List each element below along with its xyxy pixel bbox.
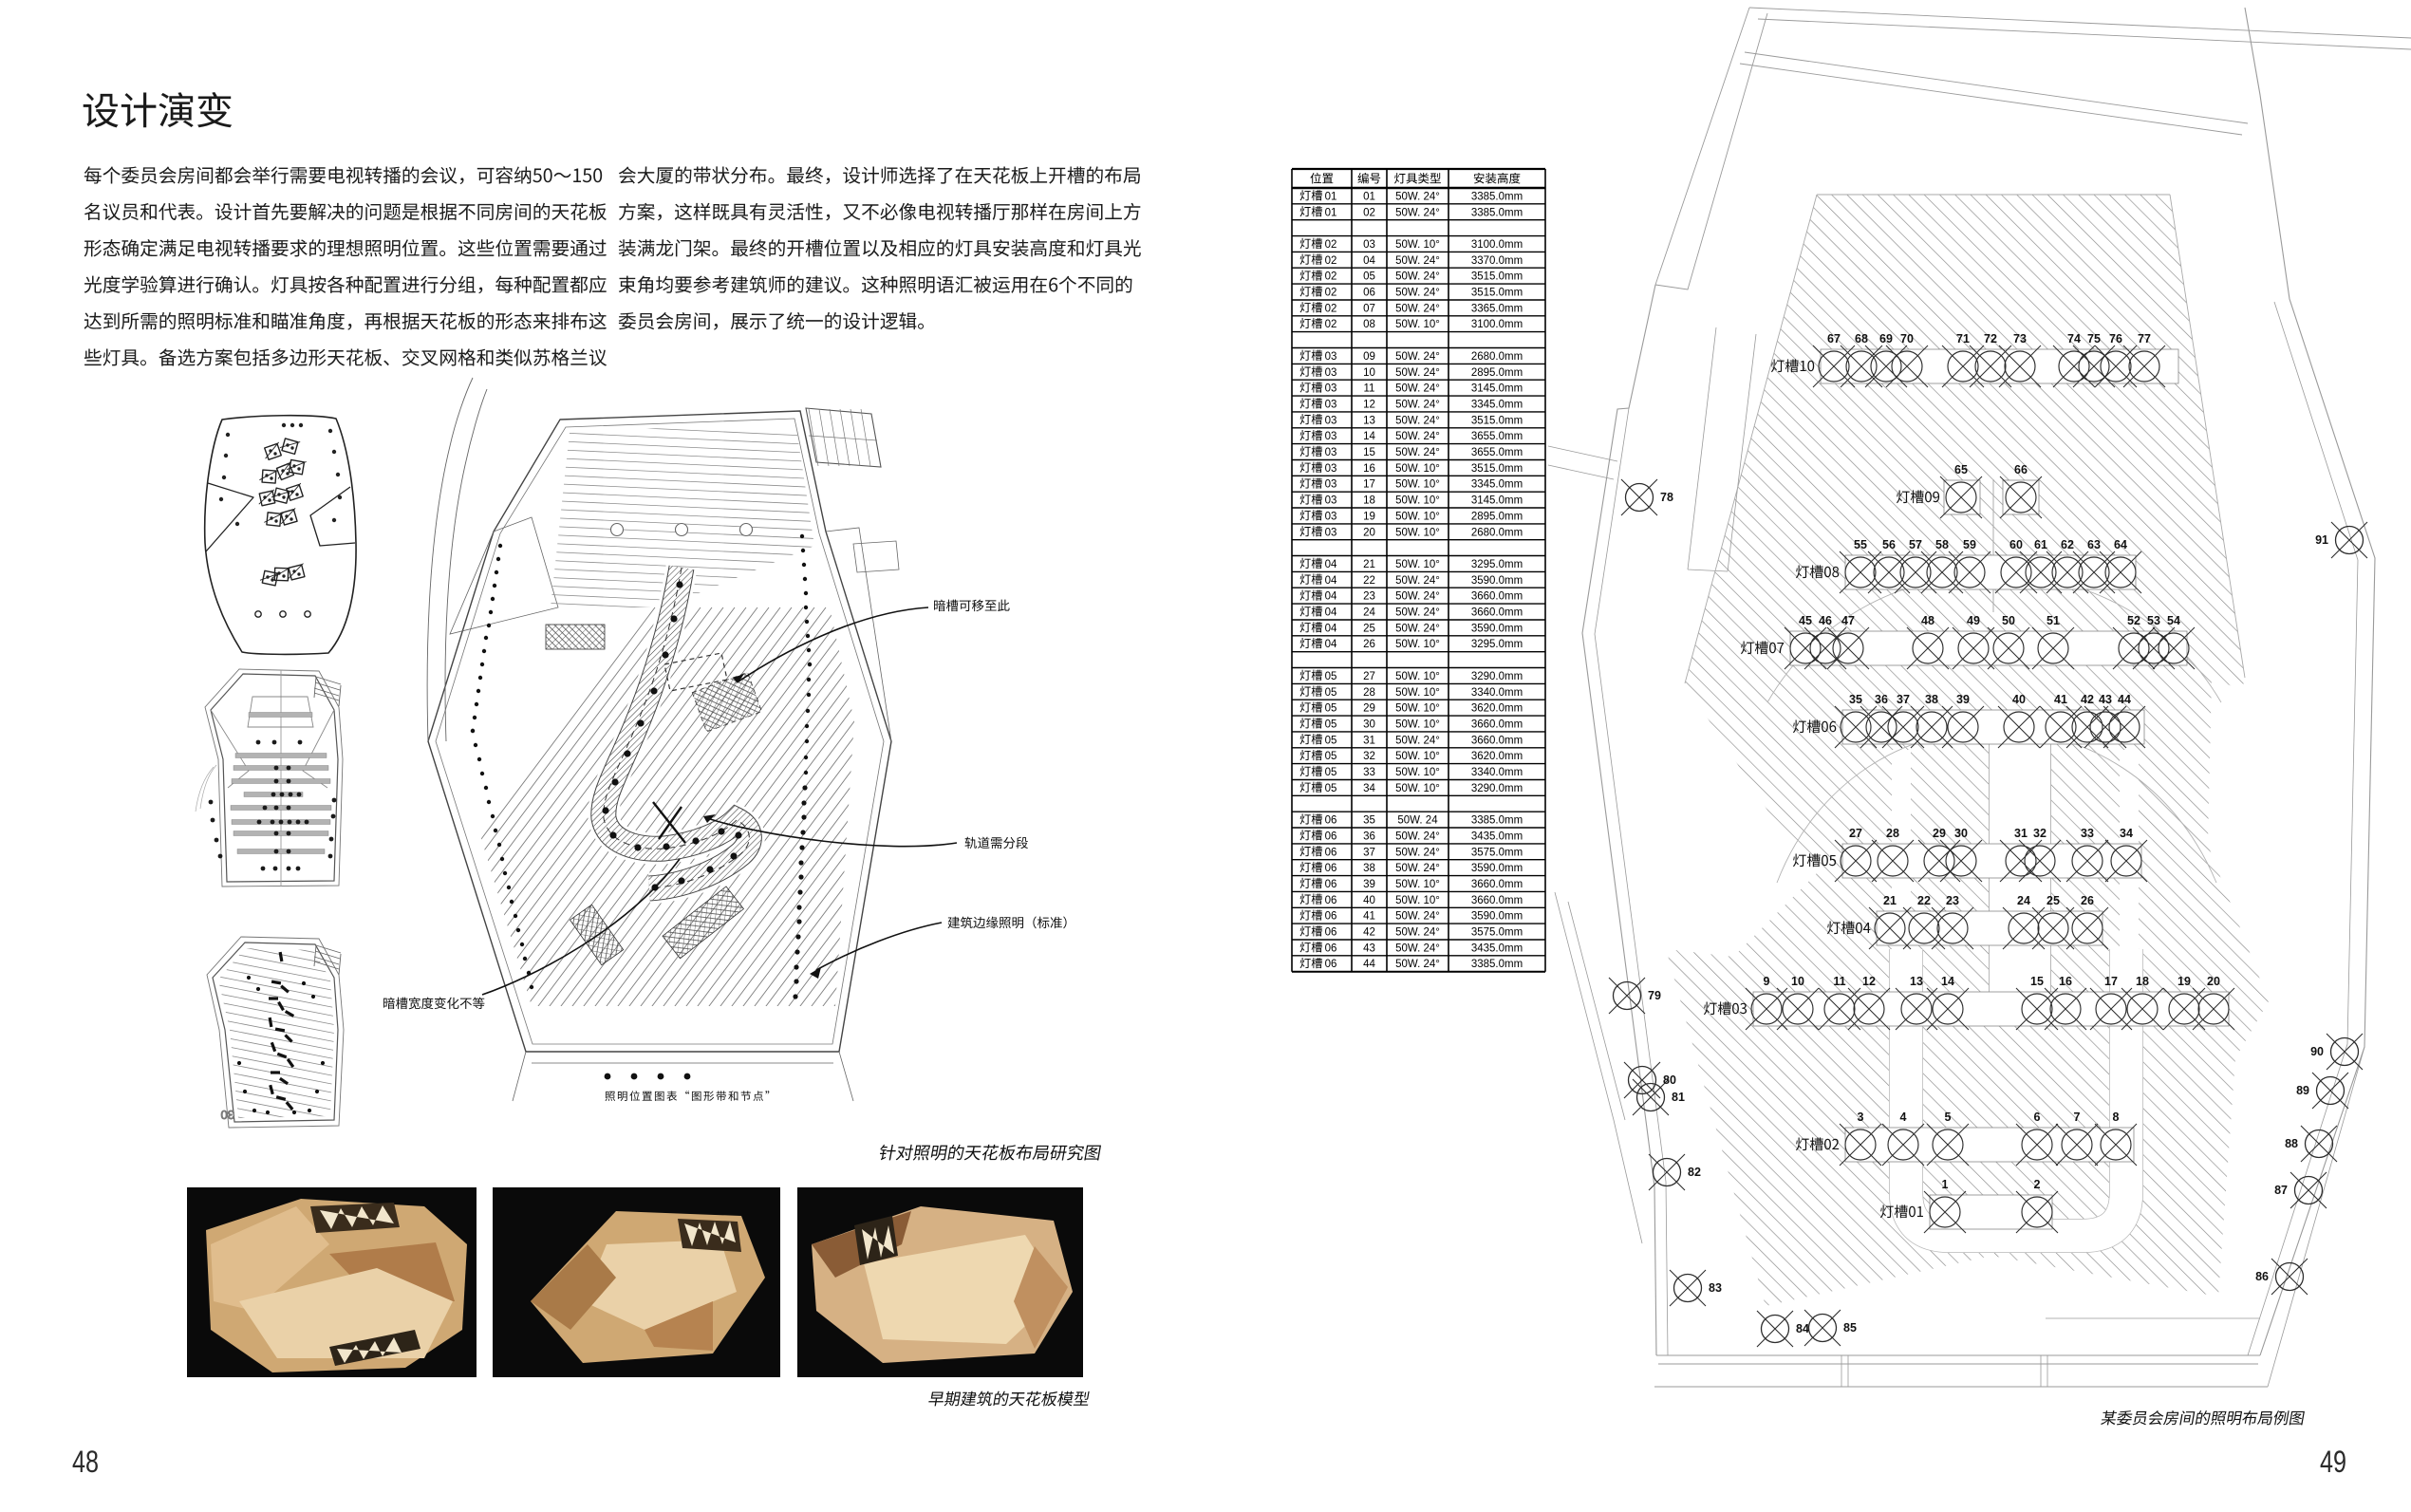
svg-text:03: 03: [1325, 511, 1337, 522]
svg-text:91: 91: [2315, 533, 2328, 547]
svg-text:06: 06: [1325, 959, 1337, 970]
svg-text:12: 12: [1363, 400, 1375, 411]
svg-text:06: 06: [1325, 911, 1337, 923]
svg-text:12: 12: [1862, 975, 1876, 988]
svg-text:50W. 24°: 50W. 24°: [1395, 400, 1440, 411]
svg-text:42: 42: [2081, 693, 2094, 706]
svg-text:50W. 10°: 50W. 10°: [1395, 671, 1440, 682]
svg-text:19: 19: [2177, 975, 2191, 988]
svg-text:30: 30: [221, 1108, 234, 1122]
svg-text:81: 81: [1672, 1091, 1685, 1104]
svg-text:5: 5: [1945, 1111, 1952, 1124]
svg-text:67: 67: [1827, 332, 1841, 345]
svg-text:27: 27: [1849, 827, 1862, 840]
svg-text:50W. 10°: 50W. 10°: [1395, 639, 1440, 650]
svg-text:04: 04: [1325, 639, 1337, 650]
svg-text:31: 31: [1363, 735, 1375, 746]
svg-text:66: 66: [2014, 463, 2028, 476]
svg-text:14: 14: [1363, 431, 1375, 442]
svg-text:44: 44: [1363, 959, 1375, 970]
svg-text:33: 33: [1363, 767, 1375, 778]
svg-text:80: 80: [1663, 1073, 1676, 1087]
svg-text:48: 48: [1921, 614, 1934, 627]
svg-text:05: 05: [1325, 783, 1337, 794]
svg-text:05: 05: [1363, 271, 1375, 283]
svg-text:46: 46: [1819, 614, 1832, 627]
svg-text:35: 35: [1849, 693, 1862, 706]
svg-text:50W. 10°: 50W. 10°: [1395, 479, 1440, 491]
svg-text:50W. 24°: 50W. 24°: [1395, 847, 1440, 858]
svg-text:39: 39: [1363, 879, 1375, 890]
svg-text:03: 03: [1325, 479, 1337, 491]
svg-text:23: 23: [1363, 591, 1375, 603]
svg-text:89: 89: [2296, 1084, 2309, 1097]
svg-text:84: 84: [1796, 1322, 1809, 1335]
svg-text:32: 32: [1363, 751, 1375, 762]
svg-text:3145.0mm: 3145.0mm: [1471, 383, 1523, 395]
svg-text:02: 02: [1363, 207, 1375, 218]
svg-text:4: 4: [1900, 1111, 1907, 1124]
svg-text:51: 51: [2047, 614, 2060, 627]
svg-text:3345.0mm: 3345.0mm: [1471, 479, 1523, 491]
svg-text:50W. 24°: 50W. 24°: [1395, 863, 1440, 874]
svg-text:29: 29: [1363, 703, 1375, 715]
svg-text:22: 22: [1917, 894, 1931, 907]
svg-text:71: 71: [1956, 332, 1970, 345]
svg-text:50W. 10°: 50W. 10°: [1395, 495, 1440, 507]
svg-text:15: 15: [2030, 975, 2044, 988]
svg-text:02: 02: [1325, 288, 1337, 299]
svg-text:09: 09: [1363, 351, 1375, 363]
svg-text:45: 45: [1799, 614, 1812, 627]
svg-text:03: 03: [1325, 447, 1337, 458]
svg-text:55: 55: [1854, 538, 1867, 551]
svg-text:50W. 24°: 50W. 24°: [1395, 383, 1440, 395]
svg-text:37: 37: [1363, 847, 1375, 858]
svg-text:3515.0mm: 3515.0mm: [1471, 463, 1523, 475]
svg-text:50W. 24°: 50W. 24°: [1395, 367, 1440, 379]
svg-text:8: 8: [2113, 1111, 2120, 1124]
svg-text:36: 36: [1875, 693, 1888, 706]
svg-text:26: 26: [1363, 639, 1375, 650]
svg-text:3295.0mm: 3295.0mm: [1471, 559, 1523, 570]
svg-text:88: 88: [2285, 1137, 2298, 1150]
svg-text:56: 56: [1882, 538, 1896, 551]
svg-text:50W. 10°: 50W. 10°: [1395, 687, 1440, 699]
svg-text:43: 43: [2099, 693, 2112, 706]
svg-text:47: 47: [1841, 614, 1855, 627]
svg-text:06: 06: [1325, 863, 1337, 874]
svg-text:50W. 10°: 50W. 10°: [1395, 511, 1440, 522]
svg-text:04: 04: [1325, 575, 1337, 587]
svg-text:77: 77: [2138, 332, 2151, 345]
svg-text:50W. 24°: 50W. 24°: [1395, 431, 1440, 442]
svg-text:74: 74: [2067, 332, 2081, 345]
svg-text:3145.0mm: 3145.0mm: [1471, 495, 1523, 507]
svg-text:40: 40: [2012, 693, 2026, 706]
svg-text:05: 05: [1325, 703, 1337, 715]
svg-text:3340.0mm: 3340.0mm: [1471, 687, 1523, 699]
svg-text:57: 57: [1909, 538, 1922, 551]
svg-text:50W. 10°: 50W. 10°: [1395, 783, 1440, 794]
svg-text:28: 28: [1363, 687, 1375, 699]
svg-text:24: 24: [2017, 894, 2030, 907]
svg-text:50W. 10°: 50W. 10°: [1395, 239, 1440, 251]
svg-text:50W. 24°: 50W. 24°: [1395, 271, 1440, 283]
svg-text:52: 52: [2127, 614, 2140, 627]
svg-text:3590.0mm: 3590.0mm: [1471, 911, 1523, 923]
svg-text:73: 73: [2013, 332, 2027, 345]
svg-text:24: 24: [1363, 607, 1375, 619]
svg-text:21: 21: [1363, 559, 1375, 570]
svg-text:3590.0mm: 3590.0mm: [1471, 575, 1523, 587]
svg-text:34: 34: [1363, 783, 1375, 794]
svg-text:3365.0mm: 3365.0mm: [1471, 303, 1523, 314]
svg-text:3435.0mm: 3435.0mm: [1471, 831, 1523, 842]
svg-text:50W. 10°: 50W. 10°: [1395, 719, 1440, 731]
svg-text:82: 82: [1688, 1166, 1701, 1179]
svg-text:06: 06: [1363, 288, 1375, 299]
svg-text:50W. 24°: 50W. 24°: [1395, 911, 1440, 923]
svg-text:3385.0mm: 3385.0mm: [1471, 207, 1523, 218]
svg-text:65: 65: [1954, 463, 1968, 476]
svg-text:3340.0mm: 3340.0mm: [1471, 767, 1523, 778]
svg-text:08: 08: [1363, 319, 1375, 330]
svg-text:50W. 24°: 50W. 24°: [1395, 591, 1440, 603]
svg-text:78: 78: [1660, 491, 1673, 504]
svg-text:6: 6: [2034, 1111, 2041, 1124]
svg-text:02: 02: [1325, 255, 1337, 267]
svg-text:3385.0mm: 3385.0mm: [1471, 191, 1523, 202]
svg-text:2895.0mm: 2895.0mm: [1471, 511, 1523, 522]
svg-text:75: 75: [2087, 332, 2101, 345]
svg-text:20: 20: [1363, 527, 1375, 538]
svg-text:10: 10: [1363, 367, 1375, 379]
svg-text:02: 02: [1325, 319, 1337, 330]
svg-text:37: 37: [1897, 693, 1910, 706]
svg-text:50W. 24°: 50W. 24°: [1395, 575, 1440, 587]
svg-text:05: 05: [1325, 719, 1337, 731]
svg-text:58: 58: [1935, 538, 1949, 551]
svg-text:01: 01: [1325, 191, 1337, 202]
svg-text:50W. 24°: 50W. 24°: [1395, 735, 1440, 746]
svg-text:17: 17: [1363, 479, 1375, 491]
svg-text:3515.0mm: 3515.0mm: [1471, 271, 1523, 283]
svg-text:49: 49: [1967, 614, 1980, 627]
svg-text:20: 20: [2207, 975, 2220, 988]
svg-text:03: 03: [1325, 400, 1337, 411]
svg-text:50W. 10°: 50W. 10°: [1395, 751, 1440, 762]
svg-text:06: 06: [1325, 815, 1337, 827]
svg-text:2680.0mm: 2680.0mm: [1471, 527, 1523, 538]
svg-text:44: 44: [2118, 693, 2131, 706]
svg-text:28: 28: [1886, 827, 1899, 840]
svg-text:41: 41: [1363, 911, 1375, 923]
svg-text:50W. 24°: 50W. 24°: [1395, 607, 1440, 619]
svg-text:05: 05: [1325, 687, 1337, 699]
svg-text:3515.0mm: 3515.0mm: [1471, 288, 1523, 299]
svg-text:3575.0mm: 3575.0mm: [1471, 847, 1523, 858]
svg-text:18: 18: [2136, 975, 2149, 988]
svg-text:50W. 24°: 50W. 24°: [1395, 447, 1440, 458]
svg-text:85: 85: [1843, 1321, 1857, 1335]
svg-text:27: 27: [1363, 671, 1375, 682]
svg-text:25: 25: [1363, 623, 1375, 634]
svg-text:35: 35: [1363, 815, 1375, 827]
svg-text:41: 41: [2054, 693, 2067, 706]
svg-text:3655.0mm: 3655.0mm: [1471, 431, 1523, 442]
svg-text:70: 70: [1900, 332, 1914, 345]
svg-text:3660.0mm: 3660.0mm: [1471, 735, 1523, 746]
svg-text:02: 02: [1325, 239, 1337, 251]
svg-text:50W. 24°: 50W. 24°: [1395, 303, 1440, 314]
svg-text:04: 04: [1363, 255, 1375, 267]
svg-text:63: 63: [2087, 538, 2101, 551]
svg-text:38: 38: [1925, 693, 1938, 706]
svg-text:05: 05: [1325, 767, 1337, 778]
svg-text:3345.0mm: 3345.0mm: [1471, 400, 1523, 411]
svg-text:3575.0mm: 3575.0mm: [1471, 927, 1523, 939]
svg-text:25: 25: [2047, 894, 2060, 907]
svg-text:49: 49: [2320, 1445, 2346, 1479]
svg-text:50W. 24°: 50W. 24°: [1395, 415, 1440, 426]
svg-text:16: 16: [1363, 463, 1375, 475]
svg-text:3290.0mm: 3290.0mm: [1471, 783, 1523, 794]
svg-text:30: 30: [1954, 827, 1968, 840]
svg-text:43: 43: [1363, 943, 1375, 954]
svg-text:23: 23: [1946, 894, 1959, 907]
svg-text:04: 04: [1325, 591, 1337, 603]
svg-text:79: 79: [1648, 989, 1661, 1002]
svg-text:50W. 10°: 50W. 10°: [1395, 527, 1440, 538]
svg-text:06: 06: [1325, 879, 1337, 890]
svg-text:05: 05: [1325, 735, 1337, 746]
svg-text:3660.0mm: 3660.0mm: [1471, 607, 1523, 619]
svg-text:54: 54: [2167, 614, 2180, 627]
svg-text:3660.0mm: 3660.0mm: [1471, 895, 1523, 906]
svg-text:06: 06: [1325, 927, 1337, 939]
svg-text:21: 21: [1883, 894, 1897, 907]
svg-text:50W. 24°: 50W. 24°: [1395, 191, 1440, 202]
svg-text:50W. 10°: 50W. 10°: [1395, 895, 1440, 906]
svg-text:06: 06: [1325, 895, 1337, 906]
svg-text:38: 38: [1363, 863, 1375, 874]
svg-text:40: 40: [1363, 895, 1375, 906]
svg-text:53: 53: [2147, 614, 2160, 627]
svg-text:13: 13: [1910, 975, 1923, 988]
svg-text:02: 02: [1325, 303, 1337, 314]
svg-text:03: 03: [1325, 415, 1337, 426]
svg-text:06: 06: [1325, 831, 1337, 842]
svg-text:36: 36: [1363, 831, 1375, 842]
svg-text:50W. 24°: 50W. 24°: [1395, 959, 1440, 970]
svg-text:30: 30: [1363, 719, 1375, 731]
svg-text:18: 18: [1363, 495, 1375, 507]
svg-text:3295.0mm: 3295.0mm: [1471, 639, 1523, 650]
svg-text:3100.0mm: 3100.0mm: [1471, 319, 1523, 330]
svg-text:3660.0mm: 3660.0mm: [1471, 591, 1523, 603]
svg-text:59: 59: [1963, 538, 1976, 551]
svg-text:3590.0mm: 3590.0mm: [1471, 863, 1523, 874]
svg-text:3620.0mm: 3620.0mm: [1471, 703, 1523, 715]
svg-text:69: 69: [1879, 332, 1893, 345]
svg-text:62: 62: [2061, 538, 2074, 551]
svg-text:3660.0mm: 3660.0mm: [1471, 879, 1523, 890]
svg-text:50W. 24: 50W. 24: [1397, 815, 1438, 827]
svg-text:02: 02: [1325, 271, 1337, 283]
svg-text:50W. 24°: 50W. 24°: [1395, 288, 1440, 299]
svg-text:50W. 24°: 50W. 24°: [1395, 927, 1440, 939]
svg-text:03: 03: [1325, 463, 1337, 475]
svg-text:50W. 24°: 50W. 24°: [1395, 831, 1440, 842]
svg-text:42: 42: [1363, 927, 1375, 939]
svg-text:01: 01: [1363, 191, 1375, 202]
svg-text:87: 87: [2274, 1184, 2288, 1197]
svg-text:13: 13: [1363, 415, 1375, 426]
svg-text:04: 04: [1325, 607, 1337, 619]
svg-text:90: 90: [2310, 1045, 2324, 1058]
svg-text:3385.0mm: 3385.0mm: [1471, 959, 1523, 970]
svg-text:3515.0mm: 3515.0mm: [1471, 415, 1523, 426]
svg-text:48: 48: [72, 1445, 99, 1479]
svg-text:3370.0mm: 3370.0mm: [1471, 255, 1523, 267]
svg-text:86: 86: [2255, 1270, 2269, 1283]
svg-text:03: 03: [1325, 495, 1337, 507]
svg-text:11: 11: [1364, 383, 1375, 395]
svg-text:05: 05: [1325, 671, 1337, 682]
svg-text:3660.0mm: 3660.0mm: [1471, 719, 1523, 731]
svg-text:50W. 10°: 50W. 10°: [1395, 767, 1440, 778]
svg-text:2: 2: [2034, 1178, 2041, 1191]
svg-text:22: 22: [1363, 575, 1375, 587]
svg-text:50W. 10°: 50W. 10°: [1395, 703, 1440, 715]
svg-text:11: 11: [1833, 975, 1845, 988]
svg-text:3590.0mm: 3590.0mm: [1471, 623, 1523, 634]
svg-text:3385.0mm: 3385.0mm: [1471, 815, 1523, 827]
svg-text:1: 1: [1942, 1178, 1949, 1191]
svg-text:03: 03: [1325, 367, 1337, 379]
svg-text:2680.0mm: 2680.0mm: [1471, 351, 1523, 363]
svg-text:03: 03: [1363, 239, 1375, 251]
svg-text:39: 39: [1956, 693, 1970, 706]
svg-text:32: 32: [2033, 827, 2047, 840]
svg-text:3655.0mm: 3655.0mm: [1471, 447, 1523, 458]
svg-text:03: 03: [1325, 527, 1337, 538]
svg-text:3435.0mm: 3435.0mm: [1471, 943, 1523, 954]
svg-text:01: 01: [1325, 207, 1337, 218]
svg-text:3620.0mm: 3620.0mm: [1471, 751, 1523, 762]
svg-text:64: 64: [2114, 538, 2127, 551]
svg-text:07: 07: [1363, 303, 1375, 314]
svg-text:50W. 10°: 50W. 10°: [1395, 879, 1440, 890]
svg-text:50W. 24°: 50W. 24°: [1395, 623, 1440, 634]
svg-text:60: 60: [2009, 538, 2023, 551]
svg-text:15: 15: [1363, 447, 1375, 458]
svg-text:29: 29: [1933, 827, 1946, 840]
svg-text:50W. 10°: 50W. 10°: [1395, 463, 1440, 475]
svg-text:50W. 24°: 50W. 24°: [1395, 351, 1440, 363]
svg-text:33: 33: [2081, 827, 2094, 840]
svg-text:06: 06: [1325, 943, 1337, 954]
svg-text:26: 26: [2081, 894, 2094, 907]
svg-text:3: 3: [1858, 1111, 1864, 1124]
svg-text:50W. 10°: 50W. 10°: [1395, 319, 1440, 330]
svg-text:7: 7: [2074, 1111, 2081, 1124]
svg-text:05: 05: [1325, 751, 1337, 762]
svg-text:03: 03: [1325, 383, 1337, 395]
svg-text:14: 14: [1941, 975, 1954, 988]
svg-text:50W. 24°: 50W. 24°: [1395, 207, 1440, 218]
svg-text:31: 31: [2014, 827, 2028, 840]
svg-text:03: 03: [1325, 431, 1337, 442]
svg-text:9: 9: [1764, 975, 1770, 988]
svg-text:19: 19: [1363, 511, 1375, 522]
svg-text:34: 34: [2120, 827, 2133, 840]
svg-text:06: 06: [1325, 847, 1337, 858]
svg-text:3290.0mm: 3290.0mm: [1471, 671, 1523, 682]
svg-text:03: 03: [1325, 351, 1337, 363]
svg-text:50W. 24°: 50W. 24°: [1395, 943, 1440, 954]
svg-text:50W. 24°: 50W. 24°: [1395, 255, 1440, 267]
svg-text:10: 10: [1791, 975, 1804, 988]
svg-text:61: 61: [2034, 538, 2047, 551]
svg-text:68: 68: [1855, 332, 1868, 345]
svg-text:50: 50: [2002, 614, 2015, 627]
svg-text:16: 16: [2059, 975, 2072, 988]
svg-text:17: 17: [2104, 975, 2118, 988]
svg-text:83: 83: [1709, 1281, 1722, 1295]
svg-text:3100.0mm: 3100.0mm: [1471, 239, 1523, 251]
svg-text:76: 76: [2109, 332, 2122, 345]
svg-text:2895.0mm: 2895.0mm: [1471, 367, 1523, 379]
svg-text:04: 04: [1325, 559, 1337, 570]
svg-text:72: 72: [1984, 332, 1997, 345]
svg-text:04: 04: [1325, 623, 1337, 634]
svg-text:50W. 10°: 50W. 10°: [1395, 559, 1440, 570]
